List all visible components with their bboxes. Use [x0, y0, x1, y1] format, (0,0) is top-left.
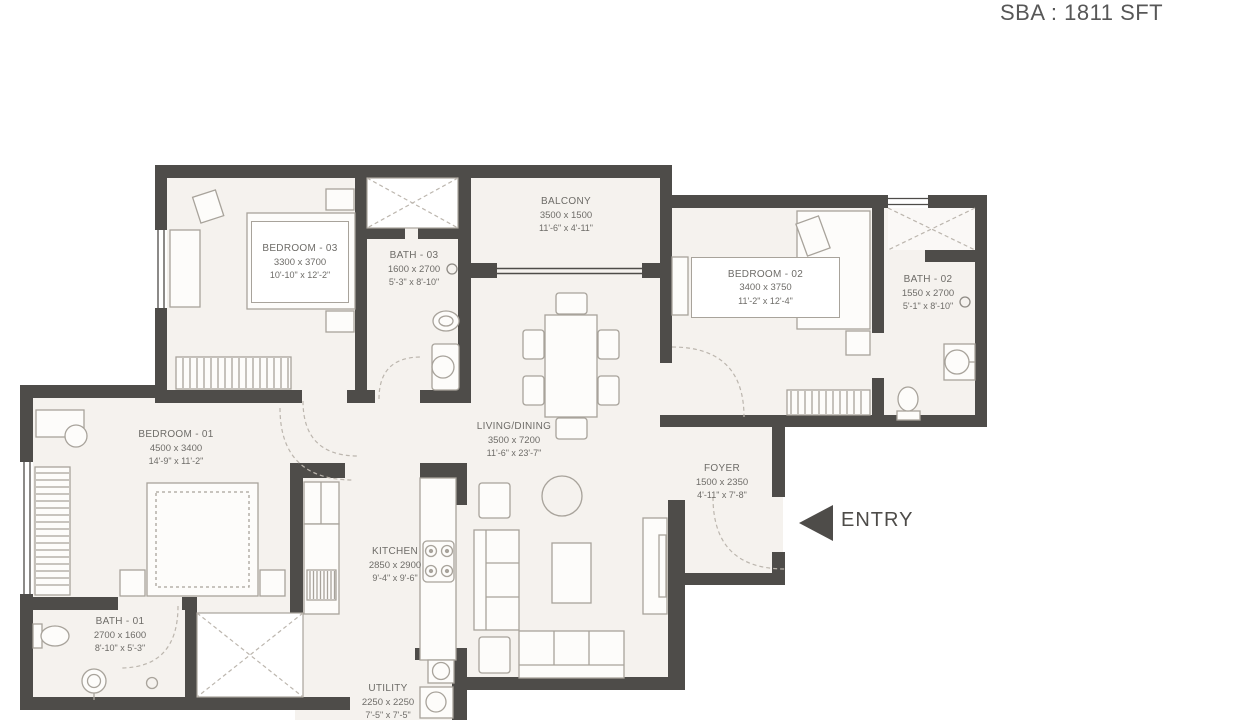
room-name: BATH - 02: [882, 274, 974, 285]
toilet-bath1: [33, 624, 69, 648]
room-label-bedroom1: BEDROOM - 01 4500 x 3400 14'-9" x 11'-2": [124, 429, 228, 467]
washbasin-bath3: [433, 311, 459, 331]
entry-label: ENTRY: [841, 509, 913, 532]
room-name: BEDROOM - 03: [262, 243, 337, 254]
shower-bath2: [888, 208, 975, 250]
room-dims-mm: 1500 x 2350: [670, 477, 774, 488]
room-dims-mm: 3500 x 1500: [515, 210, 617, 221]
room-dims-ft: 14'-9" x 11'-2": [124, 456, 228, 467]
shaft-bath3: [367, 178, 458, 228]
room-label-bath1: BATH - 01 2700 x 1600 8'-10" x 5'-3": [68, 616, 172, 654]
room-dims-ft: 11'-6" x 23'-7": [462, 448, 566, 459]
room-dims-ft: 9'-4" x 9'-6": [343, 573, 447, 584]
room-dims-mm: 1600 x 2700: [366, 264, 462, 275]
room-name: BATH - 01: [68, 616, 172, 627]
dresser-bedroom2: [672, 257, 688, 315]
room-label-utility: UTILITY 2250 x 2250 7'-5" x 7'-5": [336, 683, 440, 720]
room-label-living: LIVING/DINING 3500 x 7200 11'-6" x 23'-7…: [462, 421, 566, 459]
fridge-kitchen: [304, 482, 339, 524]
washbasin-bath2: [944, 344, 975, 380]
room-label-bedroom2: BEDROOM - 02 3400 x 3750 11'-2" x 12'-4": [691, 257, 840, 318]
room-dims-ft: 10'-10" x 12'-2": [270, 270, 330, 281]
floor-plan-drawing: [0, 0, 1240, 720]
room-dims-mm: 2700 x 1600: [68, 630, 172, 641]
room-label-bath2: BATH - 02 1550 x 2700 5'-1" x 8'-10": [882, 274, 974, 312]
room-label-foyer: FOYER 1500 x 2350 4'-11" x 7'-8": [670, 463, 774, 501]
sba-title: SBA : 1811 SFT: [1000, 0, 1170, 26]
room-label-balcony: BALCONY 3500 x 1500 11'-6" x 4'-11": [515, 196, 617, 234]
room-name: FOYER: [670, 463, 774, 474]
room-dims-ft: 11'-2" x 12'-4": [738, 296, 793, 307]
room-dims-mm: 3400 x 3750: [739, 282, 791, 293]
room-dims-mm: 2850 x 2900: [343, 560, 447, 571]
sink-utility: [428, 660, 454, 683]
room-label-bedroom3: BEDROOM - 03 3300 x 3700 10'-10" x 12'-2…: [251, 221, 349, 303]
room-dims-mm: 1550 x 2700: [882, 288, 974, 299]
room-dims-ft: 4'-11" x 7'-8": [670, 490, 774, 501]
room-name: BEDROOM - 01: [124, 429, 228, 440]
room-dims-ft: 5'-1" x 8'-10": [882, 301, 974, 312]
window-bath2: [888, 195, 928, 208]
toilet-bath2: [897, 387, 920, 420]
room-name: LIVING/DINING: [462, 421, 566, 432]
shaft-bottom: [197, 613, 303, 697]
room-dims-ft: 8'-10" x 5'-3": [68, 643, 172, 654]
room-label-bath3: BATH - 03 1600 x 2700 5'-3" x 8'-10": [366, 250, 462, 288]
floor-plan-page: SBA : 1811 SFT ENTRY BEDROOM - 03 3300 x…: [0, 0, 1240, 720]
room-dims-ft: 7'-5" x 7'-5": [336, 710, 440, 720]
room-dims-mm: 3300 x 3700: [274, 257, 326, 268]
room-dims-ft: 11'-6" x 4'-11": [515, 223, 617, 234]
toilet-bath3: [432, 344, 459, 390]
room-name: BATH - 03: [366, 250, 462, 261]
wardrobe-bedroom1: [35, 467, 70, 595]
room-name: KITCHEN: [343, 546, 447, 557]
tv-console: [643, 518, 667, 614]
room-dims-mm: 2250 x 2250: [336, 697, 440, 708]
coffee-table: [552, 543, 591, 603]
room-dims-ft: 5'-3" x 8'-10": [366, 277, 462, 288]
window-bedroom3: [155, 230, 167, 308]
counter-left-kitchen: [304, 524, 339, 614]
entry-arrow-icon: [799, 505, 833, 541]
room-dims-mm: 3500 x 7200: [462, 435, 566, 446]
window-bedroom1: [20, 462, 33, 594]
room-name: BEDROOM - 02: [728, 269, 803, 280]
room-dims-mm: 4500 x 3400: [124, 443, 228, 454]
wardrobe-bedroom2: [787, 390, 870, 415]
room-name: BALCONY: [515, 196, 617, 207]
wardrobe-bedroom3: [176, 357, 291, 389]
room-label-kitchen: KITCHEN 2850 x 2900 9'-4" x 9'-6": [343, 546, 447, 584]
room-name: UTILITY: [336, 683, 440, 694]
